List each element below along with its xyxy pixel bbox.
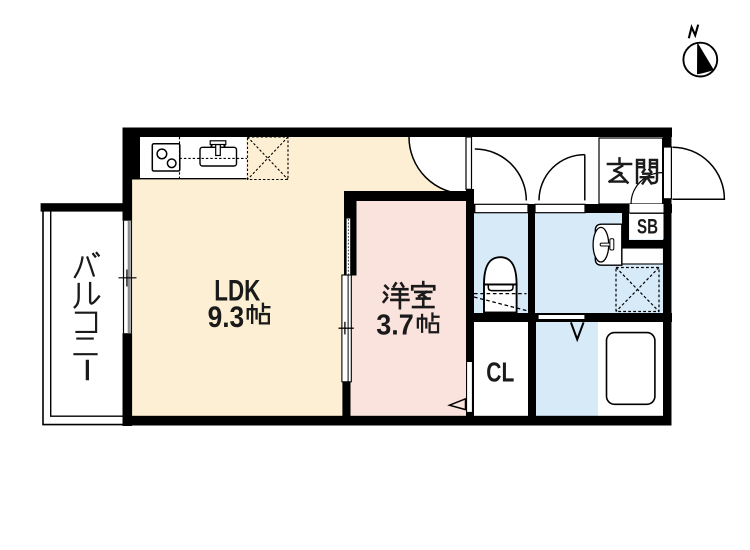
svg-text:9.3: 9.3	[208, 301, 245, 334]
svg-text:3.7: 3.7	[376, 310, 414, 342]
svg-text:SB: SB	[637, 216, 658, 239]
svg-text:CL: CL	[486, 357, 514, 388]
